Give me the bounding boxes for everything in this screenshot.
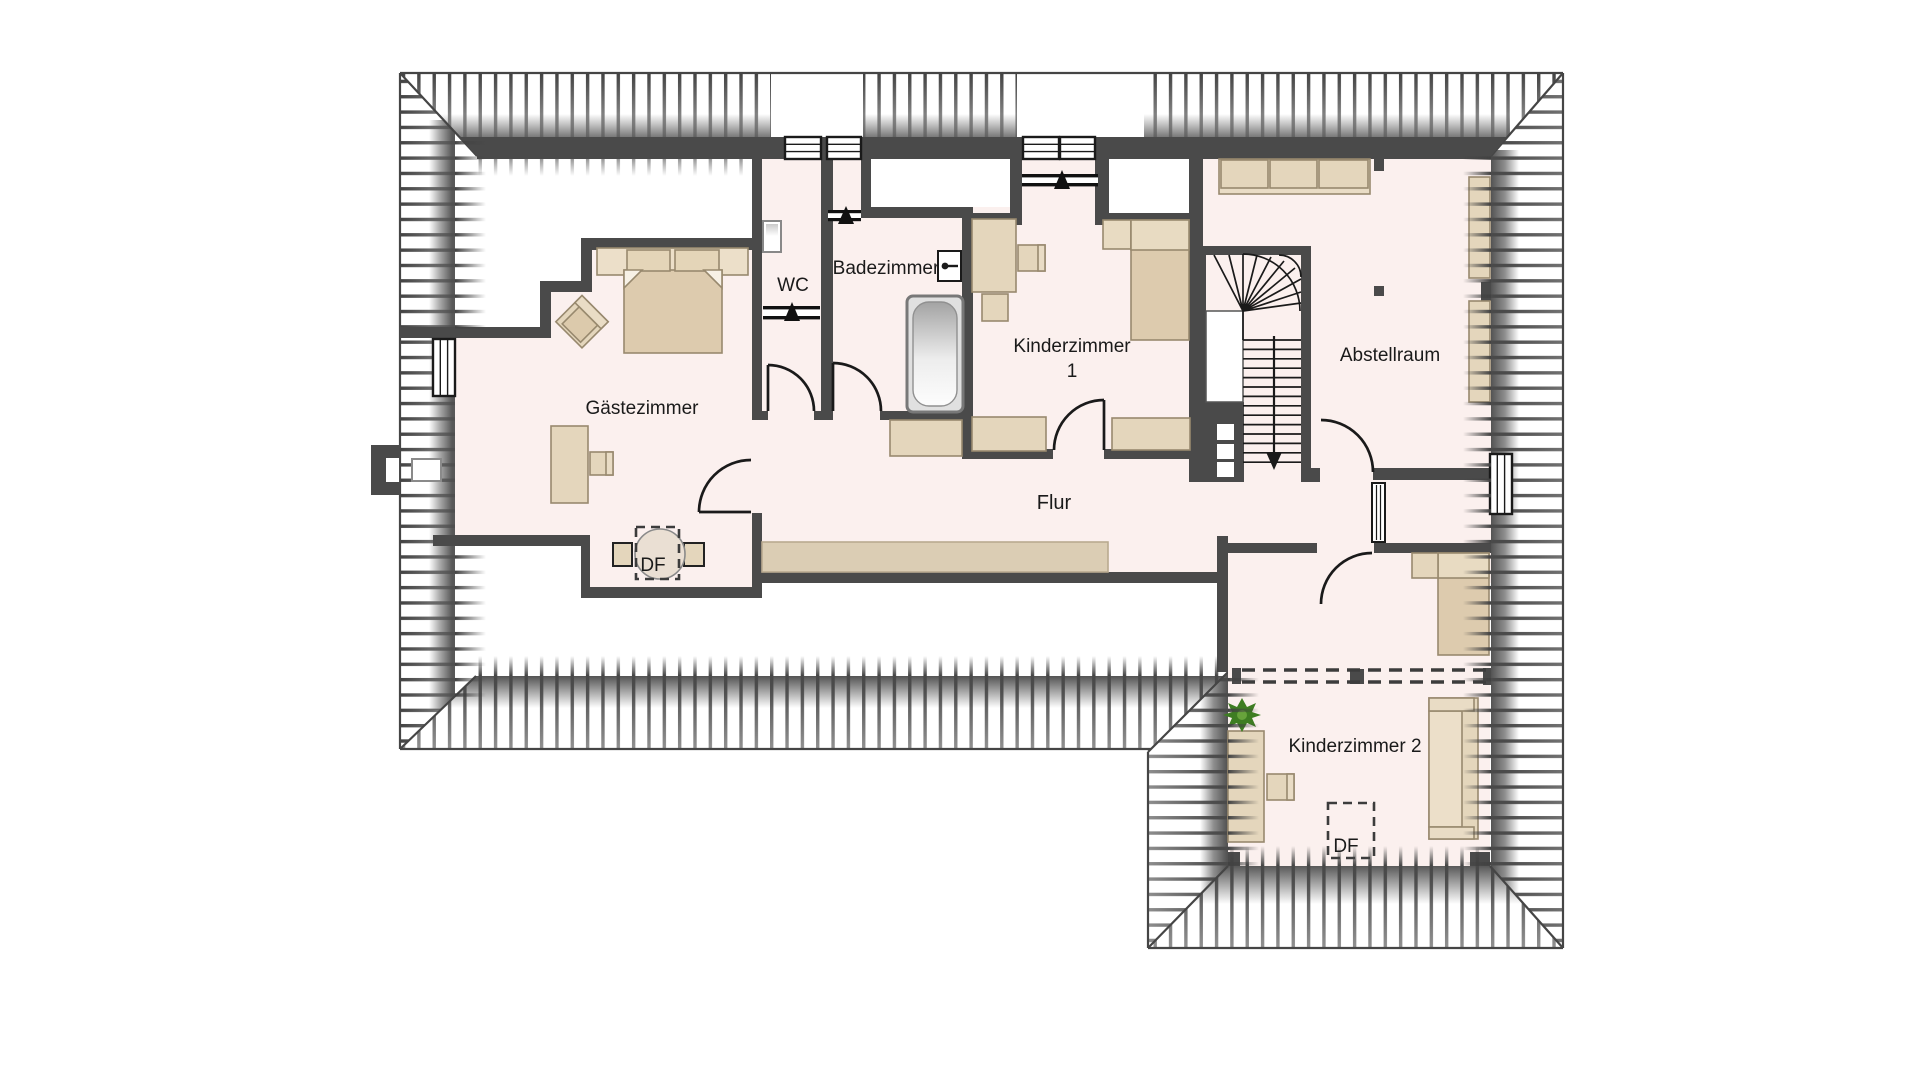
svg-text:DF: DF xyxy=(640,555,665,576)
svg-text:Gästezimmer: Gästezimmer xyxy=(586,398,700,419)
svg-text:Flur: Flur xyxy=(1037,492,1072,514)
svg-text:Kinderzimmer 2: Kinderzimmer 2 xyxy=(1288,736,1421,757)
svg-text:Abstellraum: Abstellraum xyxy=(1340,345,1440,366)
svg-text:Badezimmer: Badezimmer xyxy=(833,258,940,279)
svg-text:WC: WC xyxy=(777,275,809,296)
svg-text:DF: DF xyxy=(1333,836,1358,857)
svg-text:1: 1 xyxy=(1067,361,1078,382)
svg-text:Kinderzimmer: Kinderzimmer xyxy=(1013,336,1131,357)
